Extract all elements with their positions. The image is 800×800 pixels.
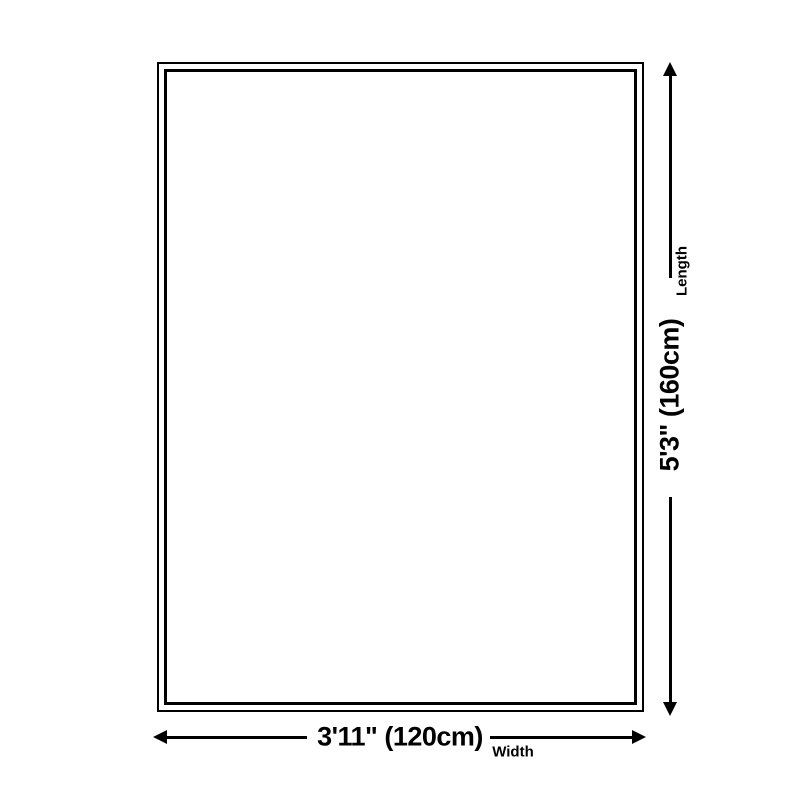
width-axis-label: Width xyxy=(492,744,534,761)
arrow-left-icon xyxy=(153,730,167,744)
arrow-right-icon xyxy=(632,730,646,744)
size-diagram: Length 5'3" (160cm) 3'11" (120cm) Width xyxy=(0,0,800,800)
width-arrow-line-left xyxy=(167,736,307,739)
arrow-up-icon xyxy=(663,62,677,76)
length-value: 5'3" (160cm) xyxy=(655,319,686,472)
length-arrow-line-lower xyxy=(669,497,672,702)
width-value: 3'11" (120cm) xyxy=(317,722,483,753)
length-axis-label: Length xyxy=(674,246,691,296)
length-arrow-line-upper xyxy=(669,75,672,278)
product-outline-inner-border xyxy=(164,69,637,705)
product-outline xyxy=(157,62,644,712)
arrow-down-icon xyxy=(663,702,677,716)
width-arrow-line-right xyxy=(490,736,632,739)
